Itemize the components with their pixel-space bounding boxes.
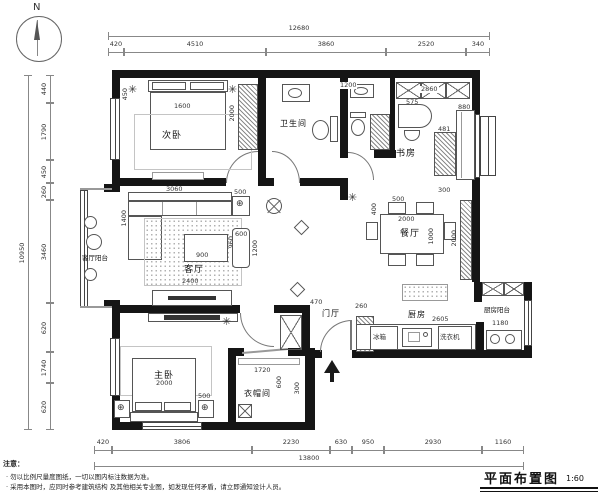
door-arc-bathroom bbox=[272, 151, 300, 183]
dimension-segment: 440 bbox=[46, 75, 54, 103]
faucet bbox=[423, 332, 428, 337]
dim-value: 260 bbox=[355, 303, 367, 310]
dim-value: 950 bbox=[353, 438, 383, 446]
wall bbox=[524, 282, 532, 300]
dim-value: 450 bbox=[122, 88, 129, 100]
room-label-living-balcony: 客厅阳台 bbox=[82, 252, 108, 262]
lamp-icon: ⊕ bbox=[117, 404, 125, 413]
dim-value: 620 bbox=[40, 400, 48, 412]
sink-basin bbox=[288, 88, 302, 98]
dim-value: 3060 bbox=[166, 186, 183, 193]
room-label-entry: 门厅 bbox=[322, 308, 340, 319]
dimension-segment: 450 bbox=[46, 160, 54, 183]
dim-value: 2520 bbox=[387, 40, 465, 48]
wall bbox=[228, 356, 236, 422]
dim-value: 880 bbox=[458, 104, 470, 111]
pillow bbox=[152, 82, 186, 90]
dimension-segment: 2930 bbox=[384, 446, 482, 454]
wall bbox=[472, 78, 480, 114]
balcony-window-panel bbox=[482, 282, 504, 296]
wall bbox=[302, 305, 310, 352]
door-arc-master bbox=[240, 313, 274, 347]
dimension-total-bottom: 13800 bbox=[94, 462, 524, 470]
lamp-icon: ⊕ bbox=[236, 200, 244, 209]
balcony-chair bbox=[84, 268, 97, 281]
plant-icon: ✳ bbox=[348, 192, 357, 203]
dining-cabinet bbox=[460, 200, 472, 280]
wall bbox=[524, 346, 532, 358]
burner bbox=[490, 334, 500, 344]
fridge-label: 冰箱 bbox=[373, 334, 386, 341]
drawing-title: 平面布置图 bbox=[484, 468, 559, 487]
dim-value: 3460 bbox=[40, 243, 48, 260]
dimension-segment: 420 bbox=[108, 48, 124, 56]
dim-value: 470 bbox=[310, 299, 322, 306]
dim-value: 2230 bbox=[253, 438, 329, 446]
dim-value: 4510 bbox=[125, 40, 265, 48]
wall bbox=[300, 178, 348, 186]
rug bbox=[134, 114, 252, 170]
room-label-bath: 卫生间 bbox=[280, 118, 307, 129]
window bbox=[524, 300, 532, 346]
bed-headboard bbox=[130, 412, 198, 422]
room-label-study: 书房 bbox=[396, 146, 416, 159]
balcony-edge bbox=[80, 188, 112, 190]
door-arc-hall bbox=[348, 152, 374, 180]
dim-value: 500 bbox=[234, 189, 246, 196]
room-label-living: 客厅 bbox=[184, 262, 204, 275]
dim-value: 600 bbox=[235, 231, 247, 238]
dim-value: 440 bbox=[40, 83, 48, 95]
sofa bbox=[456, 110, 475, 180]
dim-value: 3806 bbox=[113, 438, 251, 446]
dining-chair bbox=[388, 254, 406, 266]
entrance-arrow-icon bbox=[324, 360, 340, 373]
sofa-back bbox=[128, 192, 232, 201]
balcony-chair bbox=[84, 216, 97, 229]
pillow bbox=[190, 82, 224, 90]
dim-value: 1600 bbox=[174, 103, 191, 110]
dim-value: 420 bbox=[95, 438, 111, 446]
dim-value: 12680 bbox=[109, 24, 489, 32]
sofa-cushion-line bbox=[461, 112, 462, 178]
dim-value: 500 bbox=[198, 393, 210, 400]
dim-value: 3860 bbox=[267, 40, 385, 48]
wall bbox=[258, 70, 266, 186]
bay-window bbox=[480, 116, 496, 176]
bookshelf bbox=[434, 132, 456, 176]
dim-value: 340 bbox=[467, 40, 489, 48]
compass-north-label: N bbox=[33, 2, 40, 13]
dimension-segment: 630 bbox=[330, 446, 352, 454]
toilet-bowl bbox=[312, 120, 329, 140]
door-arc-entry bbox=[320, 320, 352, 352]
window bbox=[142, 422, 202, 430]
dim-value: 1180 bbox=[492, 320, 509, 327]
toilet-tank bbox=[350, 112, 366, 118]
dimension-segment: 340 bbox=[466, 48, 490, 56]
dim-value: 13800 bbox=[95, 454, 523, 462]
entry-door-leaf bbox=[350, 320, 352, 350]
sofa-cushion-line bbox=[162, 202, 163, 215]
room-label-bedroom2: 次卧 bbox=[162, 128, 182, 141]
note-line: · 采用本图时，应同时参考建筑结构 及其他相关专业图，如发现任何矛盾，请立即通知… bbox=[6, 481, 285, 491]
dining-chair bbox=[366, 222, 378, 240]
bench bbox=[152, 172, 204, 180]
dim-value: 630 bbox=[331, 438, 351, 446]
stool bbox=[238, 404, 252, 418]
dimension-segment: 620 bbox=[46, 383, 54, 430]
toilet-tank bbox=[330, 116, 338, 142]
room-label-kitchen-balcony: 厨房阳台 bbox=[484, 304, 510, 314]
dim-value: 2000 bbox=[451, 230, 458, 247]
dining-chair bbox=[388, 202, 406, 214]
title-underline bbox=[480, 487, 598, 489]
dim-value: 1720 bbox=[254, 367, 271, 374]
room-label-kitchen: 厨房 bbox=[408, 309, 426, 320]
dimension-segment: 620 bbox=[46, 303, 54, 352]
wall bbox=[352, 350, 530, 358]
dimension-segment: 1740 bbox=[46, 352, 54, 383]
dim-value: 481 bbox=[438, 126, 450, 133]
drawing-scale: 1:60 bbox=[566, 474, 584, 483]
closet-panel bbox=[446, 82, 470, 99]
sink-basin bbox=[408, 332, 420, 342]
wall bbox=[112, 305, 240, 313]
burner bbox=[505, 334, 515, 344]
wall bbox=[474, 282, 482, 302]
dim-value: 1000 bbox=[428, 228, 435, 245]
plant-icon: ✳ bbox=[128, 84, 137, 95]
lamp-icon: ⊕ bbox=[201, 404, 209, 413]
dim-value: 500 bbox=[392, 196, 404, 203]
wardrobe bbox=[238, 84, 258, 150]
tv bbox=[168, 296, 216, 300]
dim-value: 1160 bbox=[483, 438, 523, 446]
kitchen-island bbox=[402, 284, 448, 301]
title-underline bbox=[480, 491, 598, 492]
wall bbox=[112, 422, 142, 430]
wall bbox=[390, 78, 395, 152]
dim-value: 300 bbox=[438, 187, 450, 194]
dim-value: 420 bbox=[109, 40, 123, 48]
pillow bbox=[164, 402, 191, 411]
chair bbox=[404, 130, 420, 141]
wall bbox=[112, 70, 120, 98]
shelf bbox=[370, 114, 390, 150]
dim-value: 450 bbox=[40, 165, 48, 177]
dimension-segment: 2230 bbox=[252, 446, 330, 454]
dimension-segment: 2520 bbox=[386, 48, 466, 56]
closet-panel bbox=[396, 82, 421, 99]
toilet-bowl bbox=[351, 119, 365, 136]
dimension-segment: 4510 bbox=[124, 48, 266, 56]
window bbox=[110, 338, 120, 396]
washer-label: 洗衣机 bbox=[440, 334, 460, 341]
dim-value: 10950 bbox=[18, 242, 26, 263]
dimension-segment: 950 bbox=[352, 446, 384, 454]
balcony-window bbox=[80, 190, 88, 308]
tv bbox=[164, 315, 220, 320]
dim-value: 1790 bbox=[40, 123, 48, 140]
dim-value: 600 bbox=[276, 376, 283, 388]
dimension-total-top: 12680 bbox=[108, 32, 490, 40]
entrance-arrow-tail bbox=[330, 373, 334, 382]
dim-value: 2000 bbox=[398, 216, 415, 223]
dimension-segment: 1160 bbox=[482, 446, 524, 454]
note-line: · 勿以比例尺量度图纸，一切以图内标注数据为准。 bbox=[6, 471, 153, 481]
cloak-shelf bbox=[238, 358, 300, 365]
balcony-window-panel bbox=[504, 282, 524, 296]
dim-value: 2605 bbox=[432, 316, 449, 323]
dim-value: 2000 bbox=[229, 105, 236, 122]
hall-closet bbox=[280, 315, 302, 350]
dim-value: 2930 bbox=[385, 438, 481, 446]
dining-chair bbox=[416, 202, 434, 214]
dim-value: 900 bbox=[196, 252, 208, 259]
dimension-segment: 260 bbox=[46, 183, 54, 200]
floor-diamond-decor bbox=[294, 220, 310, 236]
dim-value: 2860 bbox=[420, 86, 439, 93]
wall bbox=[202, 422, 315, 430]
dim-value: 575 bbox=[406, 99, 418, 106]
dimension-segment: 1790 bbox=[46, 103, 54, 160]
balcony-table bbox=[86, 234, 102, 250]
dimension-segment: 420 bbox=[94, 446, 112, 454]
dim-value: 1200 bbox=[340, 82, 357, 89]
dim-value: 1400 bbox=[121, 210, 128, 227]
dim-value: 1200 bbox=[252, 240, 259, 257]
desk bbox=[398, 104, 432, 128]
notes-heading: 注意： bbox=[3, 459, 24, 469]
dining-chair bbox=[416, 254, 434, 266]
floor-diamond-decor bbox=[290, 282, 306, 298]
chandelier-icon bbox=[266, 198, 282, 214]
wall bbox=[340, 186, 348, 200]
floor-plan-sheet: N 12680 420 4510 3860 2520 340 10950 440… bbox=[0, 0, 600, 497]
dim-value: 260 bbox=[40, 185, 48, 197]
dimension-total-left: 10950 bbox=[24, 75, 32, 430]
sofa-seat bbox=[128, 201, 232, 216]
room-label-cloak: 衣帽间 bbox=[244, 388, 271, 399]
dim-value: 2400 bbox=[182, 278, 199, 285]
balcony-edge bbox=[80, 306, 112, 308]
wall bbox=[112, 70, 480, 78]
dim-value: 620 bbox=[40, 321, 48, 333]
plant-icon: ✳ bbox=[228, 84, 237, 95]
dim-value: 400 bbox=[371, 203, 378, 215]
wall bbox=[305, 348, 315, 430]
pillow bbox=[135, 402, 162, 411]
plant-icon: ✳ bbox=[222, 316, 231, 327]
compass-needle-icon bbox=[34, 20, 40, 40]
dimension-segment: 3860 bbox=[266, 48, 386, 56]
dim-value: 1740 bbox=[40, 359, 48, 376]
window bbox=[110, 98, 120, 160]
wall bbox=[476, 322, 484, 358]
dim-value: 300 bbox=[294, 382, 301, 394]
wall bbox=[472, 178, 480, 282]
room-label-dining: 餐厅 bbox=[400, 226, 420, 239]
dimension-segment: 3806 bbox=[112, 446, 252, 454]
dimension-segment: 3460 bbox=[46, 200, 54, 303]
sofa-cushion-line bbox=[196, 202, 197, 215]
dim-value: 2000 bbox=[156, 380, 173, 387]
